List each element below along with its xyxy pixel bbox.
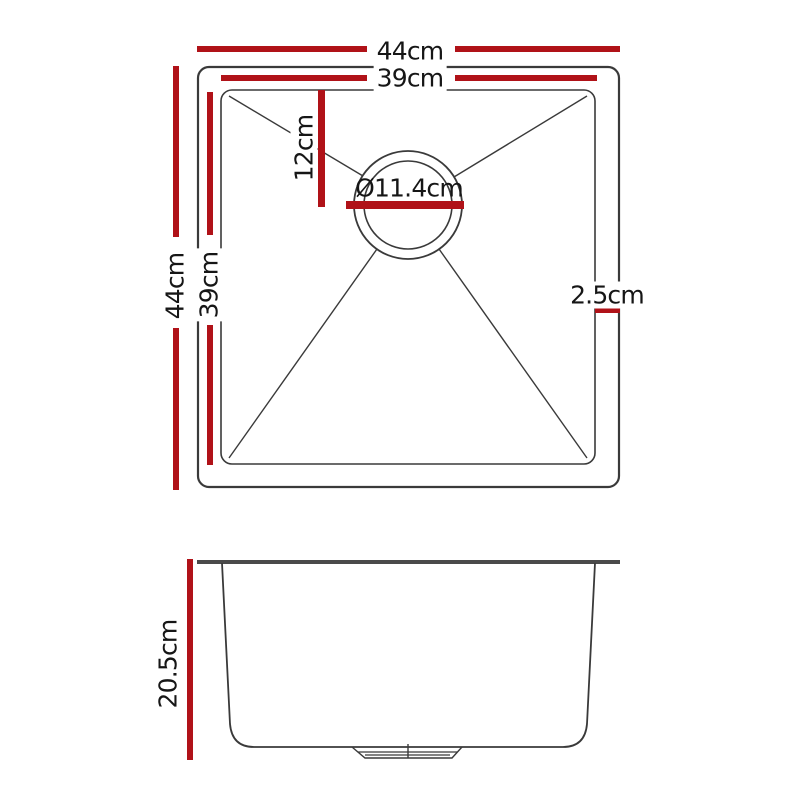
side-view: [187, 559, 620, 760]
inner-width-label: 39cm: [374, 65, 447, 92]
side-bowl-outline: [222, 563, 595, 747]
bowl-slope-line-top-right: [454, 96, 587, 177]
drain-offset-label: 12cm: [291, 112, 318, 185]
dim-bar-outer-height-bottom: [173, 328, 179, 490]
drain-diameter-label: Ø11.4cm: [352, 175, 466, 202]
dim-bar-outer-width-right: [455, 46, 620, 52]
rim-width-label: 2.5cm: [567, 282, 647, 309]
top-view: [173, 46, 620, 490]
sink-bowl-outline: [221, 90, 595, 464]
bowl-slope-line-bottom-left: [229, 249, 377, 458]
dim-bar-inner-height-top: [207, 92, 213, 235]
inner-height-label: 39cm: [196, 249, 223, 322]
dim-bar-inner-height-bottom: [207, 325, 213, 465]
dim-bar-depth: [187, 559, 193, 760]
dim-bar-outer-height-top: [173, 66, 179, 237]
dim-bar-inner-width-left: [221, 75, 367, 81]
sink-outer-rim-outline: [198, 67, 619, 487]
dim-bar-inner-width-right: [455, 75, 597, 81]
bowl-slope-line-bottom-right: [439, 249, 587, 458]
dim-bar-outer-width-left: [197, 46, 367, 52]
outer-width-label: 44cm: [374, 38, 447, 65]
sink-dimension-diagram: 44cm 39cm 44cm 39cm 12cm Ø11.4cm 2.5cm 2…: [0, 0, 800, 800]
dim-bar-drain-offset: [318, 90, 325, 207]
depth-label: 20.5cm: [155, 617, 182, 712]
diagram-linework: [0, 0, 800, 800]
outer-height-label: 44cm: [162, 250, 189, 323]
